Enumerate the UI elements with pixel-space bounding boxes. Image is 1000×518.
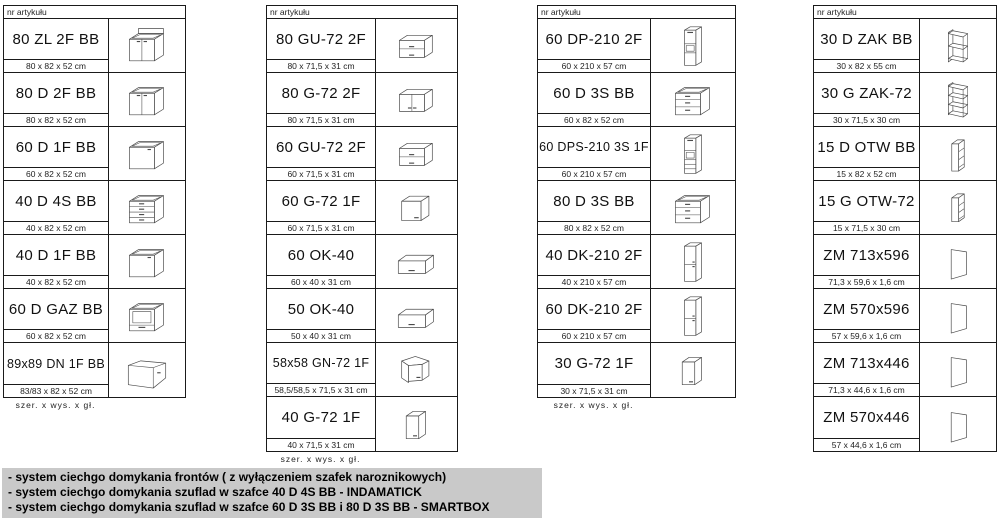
article-code: 30 G ZAK-72 <box>814 73 919 113</box>
article-code: 30 G-72 1F <box>538 343 650 384</box>
wall-2door-icon <box>376 73 457 126</box>
wall-1door-narrow-icon <box>651 343 735 397</box>
article-code: 30 D ZAK BB <box>814 19 919 59</box>
article-code: 80 D 3S BB <box>538 181 650 221</box>
catalog-row: 58x58 GN-72 1F58,5/58,5 x 71,5 x 31 cm <box>267 343 457 397</box>
article-dimensions: 30 x 71,5 x 30 cm <box>814 113 919 126</box>
dimensions-legend: szer. x wys. x gł. <box>3 400 108 410</box>
article-code: 40 D 1F BB <box>4 235 108 275</box>
base-sink-2door-icon <box>109 19 185 72</box>
base-4drawer-icon <box>109 181 185 234</box>
catalog-row: ZM 713x44671,3 x 44,6 x 1,6 cm <box>814 343 996 397</box>
catalog-row: 60 D 1F BB60 x 82 x 52 cm <box>4 127 185 181</box>
article-code: 89x89 DN 1F BB <box>4 343 108 384</box>
article-code: 60 D 3S BB <box>538 73 650 113</box>
table-header-label: nr artykułu <box>814 6 996 19</box>
end-shelf-base-icon <box>920 19 996 72</box>
article-dimensions: 50 x 40 x 31 cm <box>267 329 375 342</box>
article-dimensions: 40 x 82 x 52 cm <box>4 221 108 234</box>
catalog-row: 80 D 3S BB80 x 82 x 52 cm <box>538 181 735 235</box>
catalog-row: 60 DP-210 2F60 x 210 x 57 cm <box>538 19 735 73</box>
catalog-row: ZM 570x59657 x 59,6 x 1,6 cm <box>814 289 996 343</box>
base-2door-icon <box>109 73 185 126</box>
note-line: - system ciechgo domykania szuflad w sza… <box>8 500 536 515</box>
wall-flap-icon <box>376 289 457 342</box>
article-dimensions: 60 x 71,5 x 31 cm <box>267 167 375 180</box>
panel-icon <box>920 343 996 396</box>
notes-block: - system ciechgo domykania frontów ( z w… <box>2 468 542 518</box>
end-shelf-wall-icon <box>920 73 996 126</box>
article-dimensions: 83/83 x 82 x 52 cm <box>4 384 108 397</box>
article-code: 50 OK-40 <box>267 289 375 329</box>
catalog-row: 40 G-72 1F40 x 71,5 x 31 cm <box>267 397 457 451</box>
catalog-row: 89x89 DN 1F BB83/83 x 82 x 52 cm <box>4 343 185 397</box>
article-dimensions: 80 x 71,5 x 31 cm <box>267 113 375 126</box>
catalog-row: 40 D 1F BB40 x 82 x 52 cm <box>4 235 185 289</box>
wall-1door-narrow-icon <box>376 397 457 451</box>
catalog-row: 60 DPS-210 3S 1F60 x 210 x 57 cm <box>538 127 735 181</box>
catalog-row: 80 D 2F BB80 x 82 x 52 cm <box>4 73 185 127</box>
article-dimensions: 60 x 210 x 57 cm <box>538 167 650 180</box>
panel-icon <box>920 235 996 288</box>
article-code: 80 GU-72 2F <box>267 19 375 59</box>
wall-corner-icon <box>376 343 457 396</box>
table-header-label: nr artykułu <box>267 6 457 19</box>
catalog-row: 80 ZL 2F BB80 x 82 x 52 cm <box>4 19 185 73</box>
wall-2flap-icon <box>376 19 457 72</box>
article-dimensions: 40 x 71,5 x 31 cm <box>267 438 375 451</box>
article-dimensions: 80 x 82 x 52 cm <box>4 59 108 72</box>
article-dimensions: 60 x 82 x 52 cm <box>4 329 108 342</box>
article-dimensions: 15 x 82 x 52 cm <box>814 167 919 180</box>
note-line: - system ciechgo domykania szuflad w sza… <box>8 485 536 500</box>
article-code: 60 D GAZ BB <box>4 289 108 329</box>
article-dimensions: 15 x 71,5 x 30 cm <box>814 221 919 234</box>
article-code: 60 G-72 1F <box>267 181 375 221</box>
article-code: 60 DP-210 2F <box>538 19 650 59</box>
article-dimensions: 60 x 82 x 52 cm <box>538 113 650 126</box>
catalog-row: 15 G OTW-7215 x 71,5 x 30 cm <box>814 181 996 235</box>
article-code: 40 G-72 1F <box>267 397 375 438</box>
tall-oven-drawers-icon <box>651 127 735 180</box>
catalog-table-open-shelves-and-panels: nr artykułu30 D ZAK BB30 x 82 x 55 cm30 … <box>813 5 997 452</box>
article-dimensions: 60 x 210 x 57 cm <box>538 59 650 72</box>
catalog-table-base-cabinets: nr artykułu80 ZL 2F BB80 x 82 x 52 cm80 … <box>3 5 186 410</box>
catalog-row: 30 G ZAK-7230 x 71,5 x 30 cm <box>814 73 996 127</box>
catalog-row: 40 D 4S BB40 x 82 x 52 cm <box>4 181 185 235</box>
article-code: 15 D OTW BB <box>814 127 919 167</box>
tall-2door-icon <box>651 235 735 288</box>
article-code: ZM 570x446 <box>814 397 919 438</box>
article-code: ZM 570x596 <box>814 289 919 329</box>
table-header-label: nr artykułu <box>538 6 735 19</box>
catalog-row: 60 D 3S BB60 x 82 x 52 cm <box>538 73 735 127</box>
article-code: 40 DK-210 2F <box>538 235 650 275</box>
article-code: 40 D 4S BB <box>4 181 108 221</box>
article-dimensions: 60 x 82 x 52 cm <box>4 167 108 180</box>
article-code: 80 ZL 2F BB <box>4 19 108 59</box>
catalog-row: ZM 570x44657 x 44,6 x 1,6 cm <box>814 397 996 451</box>
wall-2flap-icon <box>376 127 457 180</box>
article-code: 60 DK-210 2F <box>538 289 650 329</box>
base-oven-icon <box>109 289 185 342</box>
article-code: 80 D 2F BB <box>4 73 108 113</box>
tall-oven-icon <box>651 19 735 72</box>
article-code: ZM 713x596 <box>814 235 919 275</box>
base-3drawer-icon <box>651 181 735 234</box>
table-header-label: nr artykułu <box>4 6 185 19</box>
catalog-row: 30 G-72 1F30 x 71,5 x 31 cm <box>538 343 735 397</box>
open-narrow-base-icon <box>920 127 996 180</box>
article-dimensions: 60 x 71,5 x 31 cm <box>267 221 375 234</box>
article-code: 58x58 GN-72 1F <box>267 343 375 383</box>
article-dimensions: 30 x 71,5 x 31 cm <box>538 384 650 397</box>
dimensions-legend: szer. x wys. x gł. <box>266 454 375 464</box>
catalog-row: 60 GU-72 2F60 x 71,5 x 31 cm <box>267 127 457 181</box>
article-code: 60 GU-72 2F <box>267 127 375 167</box>
article-dimensions: 60 x 40 x 31 cm <box>267 275 375 288</box>
catalog-table-tall-and-drawer-cabinets: nr artykułu60 DP-210 2F60 x 210 x 57 cm6… <box>537 5 736 410</box>
catalog-row: 40 DK-210 2F40 x 210 x 57 cm <box>538 235 735 289</box>
article-code: 60 D 1F BB <box>4 127 108 167</box>
dimensions-legend: szer. x wys. x gł. <box>537 400 650 410</box>
base-3drawer-icon <box>651 73 735 126</box>
tall-2door-icon <box>651 289 735 342</box>
article-code: 80 G-72 2F <box>267 73 375 113</box>
base-corner-icon <box>109 343 185 397</box>
catalog-row: 80 G-72 2F80 x 71,5 x 31 cm <box>267 73 457 127</box>
article-code: 60 OK-40 <box>267 235 375 275</box>
article-code: 60 DPS-210 3S 1F <box>538 127 650 167</box>
catalog-row: 60 OK-4060 x 40 x 31 cm <box>267 235 457 289</box>
wall-1door-icon <box>376 181 457 234</box>
article-dimensions: 80 x 71,5 x 31 cm <box>267 59 375 72</box>
catalog-table-wall-cabinets: nr artykułu80 GU-72 2F80 x 71,5 x 31 cm8… <box>266 5 458 464</box>
catalog-row: 60 DK-210 2F60 x 210 x 57 cm <box>538 289 735 343</box>
wall-flap-icon <box>376 235 457 288</box>
article-dimensions: 57 x 44,6 x 1,6 cm <box>814 438 919 451</box>
catalog-row: 80 GU-72 2F80 x 71,5 x 31 cm <box>267 19 457 73</box>
article-dimensions: 80 x 82 x 52 cm <box>4 113 108 126</box>
article-dimensions: 40 x 210 x 57 cm <box>538 275 650 288</box>
article-dimensions: 58,5/58,5 x 71,5 x 31 cm <box>267 383 375 396</box>
article-dimensions: 60 x 210 x 57 cm <box>538 329 650 342</box>
article-dimensions: 57 x 59,6 x 1,6 cm <box>814 329 919 342</box>
catalog-row: 15 D OTW BB15 x 82 x 52 cm <box>814 127 996 181</box>
catalog-row: 30 D ZAK BB30 x 82 x 55 cm <box>814 19 996 73</box>
open-narrow-wall-icon <box>920 181 996 234</box>
article-dimensions: 80 x 82 x 52 cm <box>538 221 650 234</box>
catalog-row: 60 G-72 1F60 x 71,5 x 31 cm <box>267 181 457 235</box>
catalog-row: ZM 713x59671,3 x 59,6 x 1,6 cm <box>814 235 996 289</box>
article-code: ZM 713x446 <box>814 343 919 383</box>
note-line: - system ciechgo domykania frontów ( z w… <box>8 470 536 485</box>
base-1door-icon <box>109 127 185 180</box>
article-dimensions: 40 x 82 x 52 cm <box>4 275 108 288</box>
article-dimensions: 71,3 x 59,6 x 1,6 cm <box>814 275 919 288</box>
base-1door-icon <box>109 235 185 288</box>
article-dimensions: 71,3 x 44,6 x 1,6 cm <box>814 383 919 396</box>
article-code: 15 G OTW-72 <box>814 181 919 221</box>
catalog-row: 60 D GAZ BB60 x 82 x 52 cm <box>4 289 185 343</box>
panel-icon <box>920 289 996 342</box>
panel-icon <box>920 397 996 451</box>
article-dimensions: 30 x 82 x 55 cm <box>814 59 919 72</box>
catalog-row: 50 OK-4050 x 40 x 31 cm <box>267 289 457 343</box>
